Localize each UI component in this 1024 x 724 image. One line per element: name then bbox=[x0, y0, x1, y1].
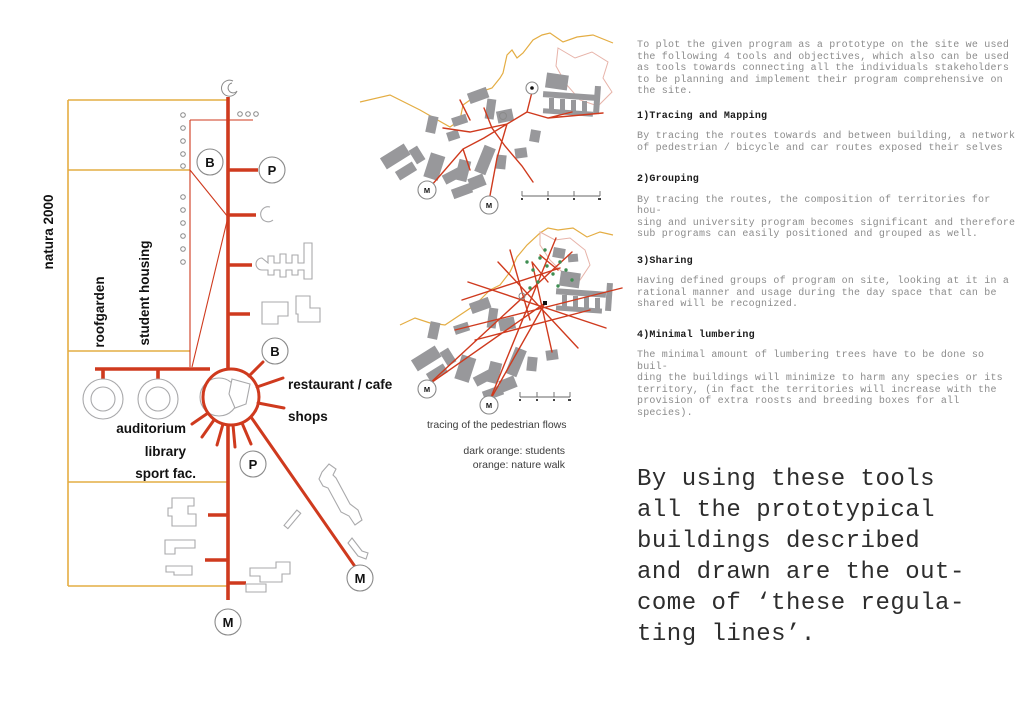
svg-text:M: M bbox=[424, 385, 430, 394]
label-roofgarden: roofgarden bbox=[92, 276, 107, 347]
section-3-body: Having defined groups of program on site… bbox=[637, 276, 1019, 311]
map-buildings bbox=[380, 73, 601, 200]
tree-dots-column bbox=[181, 113, 186, 265]
map-caption: tracing of the pedestrian flows bbox=[427, 419, 567, 431]
svg-text:M: M bbox=[424, 186, 430, 195]
svg-text:M: M bbox=[486, 201, 492, 210]
hub-node bbox=[543, 301, 547, 305]
svg-text:P: P bbox=[249, 457, 258, 472]
section-1-body: By tracing the routes towards and betwee… bbox=[637, 131, 1019, 154]
text-column: To plot the given program as a prototype… bbox=[637, 40, 1019, 650]
scale-bar-2 bbox=[519, 392, 571, 401]
section-2-body: By tracing the routes, the composition o… bbox=[637, 195, 1019, 241]
marker-bus-top: B bbox=[197, 149, 223, 175]
svg-text:M: M bbox=[486, 401, 492, 410]
map-marker-metro-1: M bbox=[418, 181, 436, 199]
marker-bus-hub: B bbox=[262, 338, 288, 364]
map-marker-bus bbox=[526, 82, 538, 94]
section-2-heading: 2)Grouping bbox=[637, 174, 1019, 186]
marker-parking-hub: P bbox=[240, 451, 266, 477]
map2-marker-metro-1: M bbox=[418, 380, 436, 398]
marker-metro-bottom: M bbox=[215, 609, 241, 635]
scale-bar bbox=[521, 191, 601, 200]
svg-text:B: B bbox=[205, 155, 214, 170]
page: B P B P M M natura 2000 roofgarden stude… bbox=[0, 0, 1024, 724]
marker-parking-top: P bbox=[259, 157, 285, 183]
section-3-heading: 3)Sharing bbox=[637, 256, 1019, 268]
label-natura-2000: natura 2000 bbox=[41, 194, 56, 269]
campus-hub bbox=[83, 362, 356, 568]
section-4-body: The minimal amount of lumbering trees ha… bbox=[637, 350, 1019, 419]
closing-statement: By using these tools all the prototypica… bbox=[637, 464, 1019, 650]
label-shops: shops bbox=[288, 409, 328, 424]
marker-metro-diagonal: M bbox=[347, 565, 373, 591]
label-library: library bbox=[145, 444, 187, 459]
svg-text:M: M bbox=[223, 615, 234, 630]
auditorium-circle bbox=[83, 379, 123, 419]
section-1-heading: 1)Tracing and Mapping bbox=[637, 111, 1019, 123]
label-student-housing: student housing bbox=[137, 241, 152, 346]
spiral-icon bbox=[222, 80, 237, 96]
intro-paragraph: To plot the given program as a prototype… bbox=[637, 40, 1019, 98]
site-map-bottom: M M bbox=[400, 228, 622, 414]
building-outlines bbox=[165, 207, 368, 592]
site-map-top: M M bbox=[360, 33, 613, 214]
label-restaurant-cafe: restaurant / cafe bbox=[288, 377, 393, 392]
dot-row bbox=[238, 112, 259, 117]
map2-marker-metro-2: M bbox=[480, 396, 498, 414]
map-legend: dark orange: students orange: nature wal… bbox=[405, 444, 565, 472]
label-sport-fac: sport fac. bbox=[135, 466, 196, 481]
library-circle bbox=[138, 379, 178, 419]
svg-text:B: B bbox=[270, 344, 279, 359]
legend-nature-walk: orange: nature walk bbox=[405, 458, 565, 472]
svg-text:M: M bbox=[355, 571, 366, 586]
svg-text:P: P bbox=[268, 163, 277, 178]
section-4-heading: 4)Minimal lumbering bbox=[637, 330, 1019, 342]
legend-students: dark orange: students bbox=[405, 444, 565, 458]
label-auditorium: auditorium bbox=[116, 421, 186, 436]
pedestrian-routes bbox=[431, 92, 603, 201]
map-marker-metro-2: M bbox=[480, 196, 498, 214]
